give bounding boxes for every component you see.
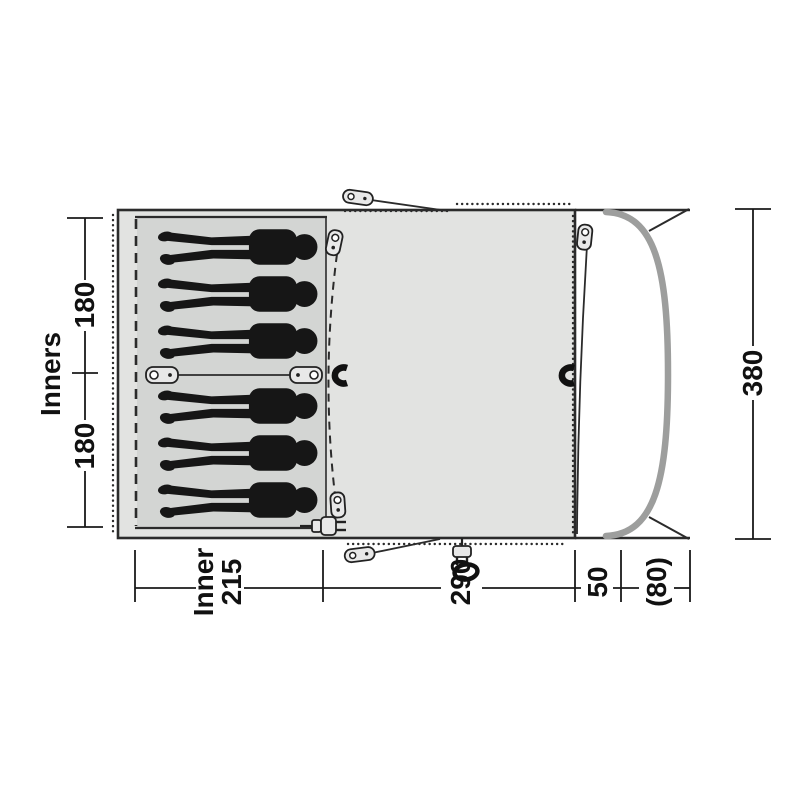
- porch-flap-line-bottom: [649, 517, 689, 539]
- tent-peg-icon-bottom: [344, 546, 375, 563]
- dimension-left-inners: 180 180 Inners: [35, 218, 103, 527]
- front-pole-curve: [606, 212, 668, 536]
- dim-label-inner-word: Inner: [188, 548, 219, 617]
- porch-flap-line-top: [649, 209, 689, 231]
- dimension-bottom: Inner 215 290 50 (80): [135, 548, 690, 617]
- dimension-right-total: 380: [735, 209, 771, 539]
- dim-label-inner-half-bottom: 180: [69, 423, 100, 470]
- dim-label-inners: Inners: [35, 332, 66, 416]
- dim-label-living-depth: 290: [445, 559, 476, 606]
- front-door-edge-line: [577, 246, 587, 534]
- dim-label-front-strip: 50: [582, 566, 613, 597]
- dim-label-inner-half-top: 180: [69, 282, 100, 329]
- guy-line-bottom: [372, 539, 440, 553]
- tent-floorplan-diagram: 180 180 Inners 380 Inner 215 290 50 (80): [0, 0, 800, 800]
- dim-label-inner-depth: 215: [216, 559, 247, 606]
- divider-toggle-icon-left: [146, 367, 178, 383]
- divider-toggle-icon-right: [290, 367, 322, 383]
- zipper-pull-icon-front-door: [576, 224, 593, 250]
- dim-label-porch-depth: (80): [641, 557, 672, 607]
- dim-label-total-depth: 380: [737, 350, 768, 397]
- tent-peg-icon-top: [342, 189, 374, 206]
- zipper-pull-icon-inner-bottom: [330, 492, 346, 518]
